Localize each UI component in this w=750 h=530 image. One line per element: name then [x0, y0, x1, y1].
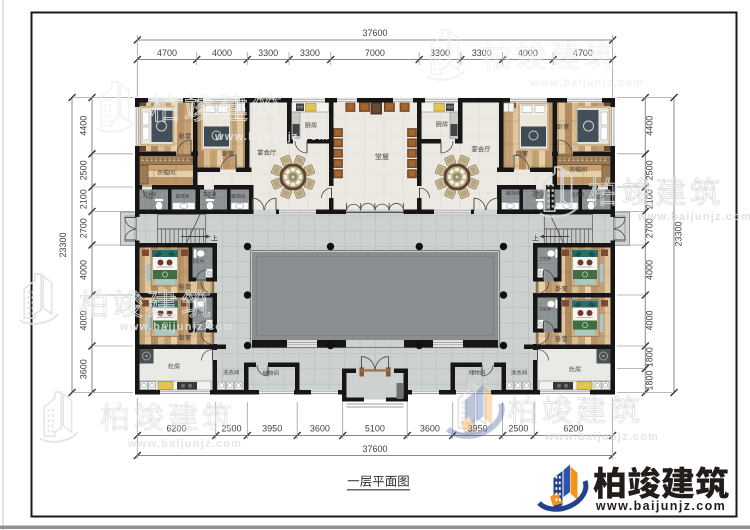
- svg-text:23300: 23300: [674, 221, 684, 246]
- svg-text:3600: 3600: [79, 359, 89, 379]
- svg-text:3600: 3600: [310, 424, 330, 434]
- svg-text:3300: 3300: [300, 48, 320, 58]
- svg-text:37600: 37600: [362, 28, 387, 38]
- svg-text:3600: 3600: [420, 424, 440, 434]
- svg-text:2500: 2500: [645, 160, 655, 180]
- svg-text:www.baijunjz.com: www.baijunjz.com: [214, 131, 329, 143]
- svg-text:www.baijunjz.com: www.baijunjz.com: [637, 211, 750, 223]
- svg-text:www.baijunjz.com: www.baijunjz.com: [595, 499, 726, 513]
- svg-text:www.baijunjz.com: www.baijunjz.com: [127, 438, 242, 450]
- svg-text:4000: 4000: [79, 260, 89, 280]
- svg-text:2500: 2500: [79, 160, 89, 180]
- svg-text:1800: 1800: [645, 370, 655, 390]
- svg-text:www.baijunjz.com: www.baijunjz.com: [529, 77, 644, 89]
- svg-text:7000: 7000: [365, 48, 385, 58]
- svg-text:4400: 4400: [79, 116, 89, 136]
- svg-text:4000: 4000: [212, 48, 232, 58]
- svg-text:www.baijunjz.com: www.baijunjz.com: [119, 321, 234, 333]
- svg-text:2100: 2100: [79, 189, 89, 209]
- svg-text:2500: 2500: [508, 424, 528, 434]
- svg-text:4700: 4700: [157, 48, 177, 58]
- svg-text:1800: 1800: [645, 347, 655, 367]
- svg-text:2700: 2700: [79, 218, 89, 238]
- svg-text:5100: 5100: [365, 424, 385, 434]
- svg-text:www.baijunjz.com: www.baijunjz.com: [544, 431, 659, 443]
- svg-text:4400: 4400: [645, 116, 655, 136]
- svg-text:37600: 37600: [362, 444, 387, 454]
- svg-text:3950: 3950: [262, 424, 282, 434]
- svg-text:4000: 4000: [645, 310, 655, 330]
- svg-text:23300: 23300: [58, 232, 68, 257]
- svg-text:3300: 3300: [258, 48, 278, 58]
- svg-text:4000: 4000: [645, 260, 655, 280]
